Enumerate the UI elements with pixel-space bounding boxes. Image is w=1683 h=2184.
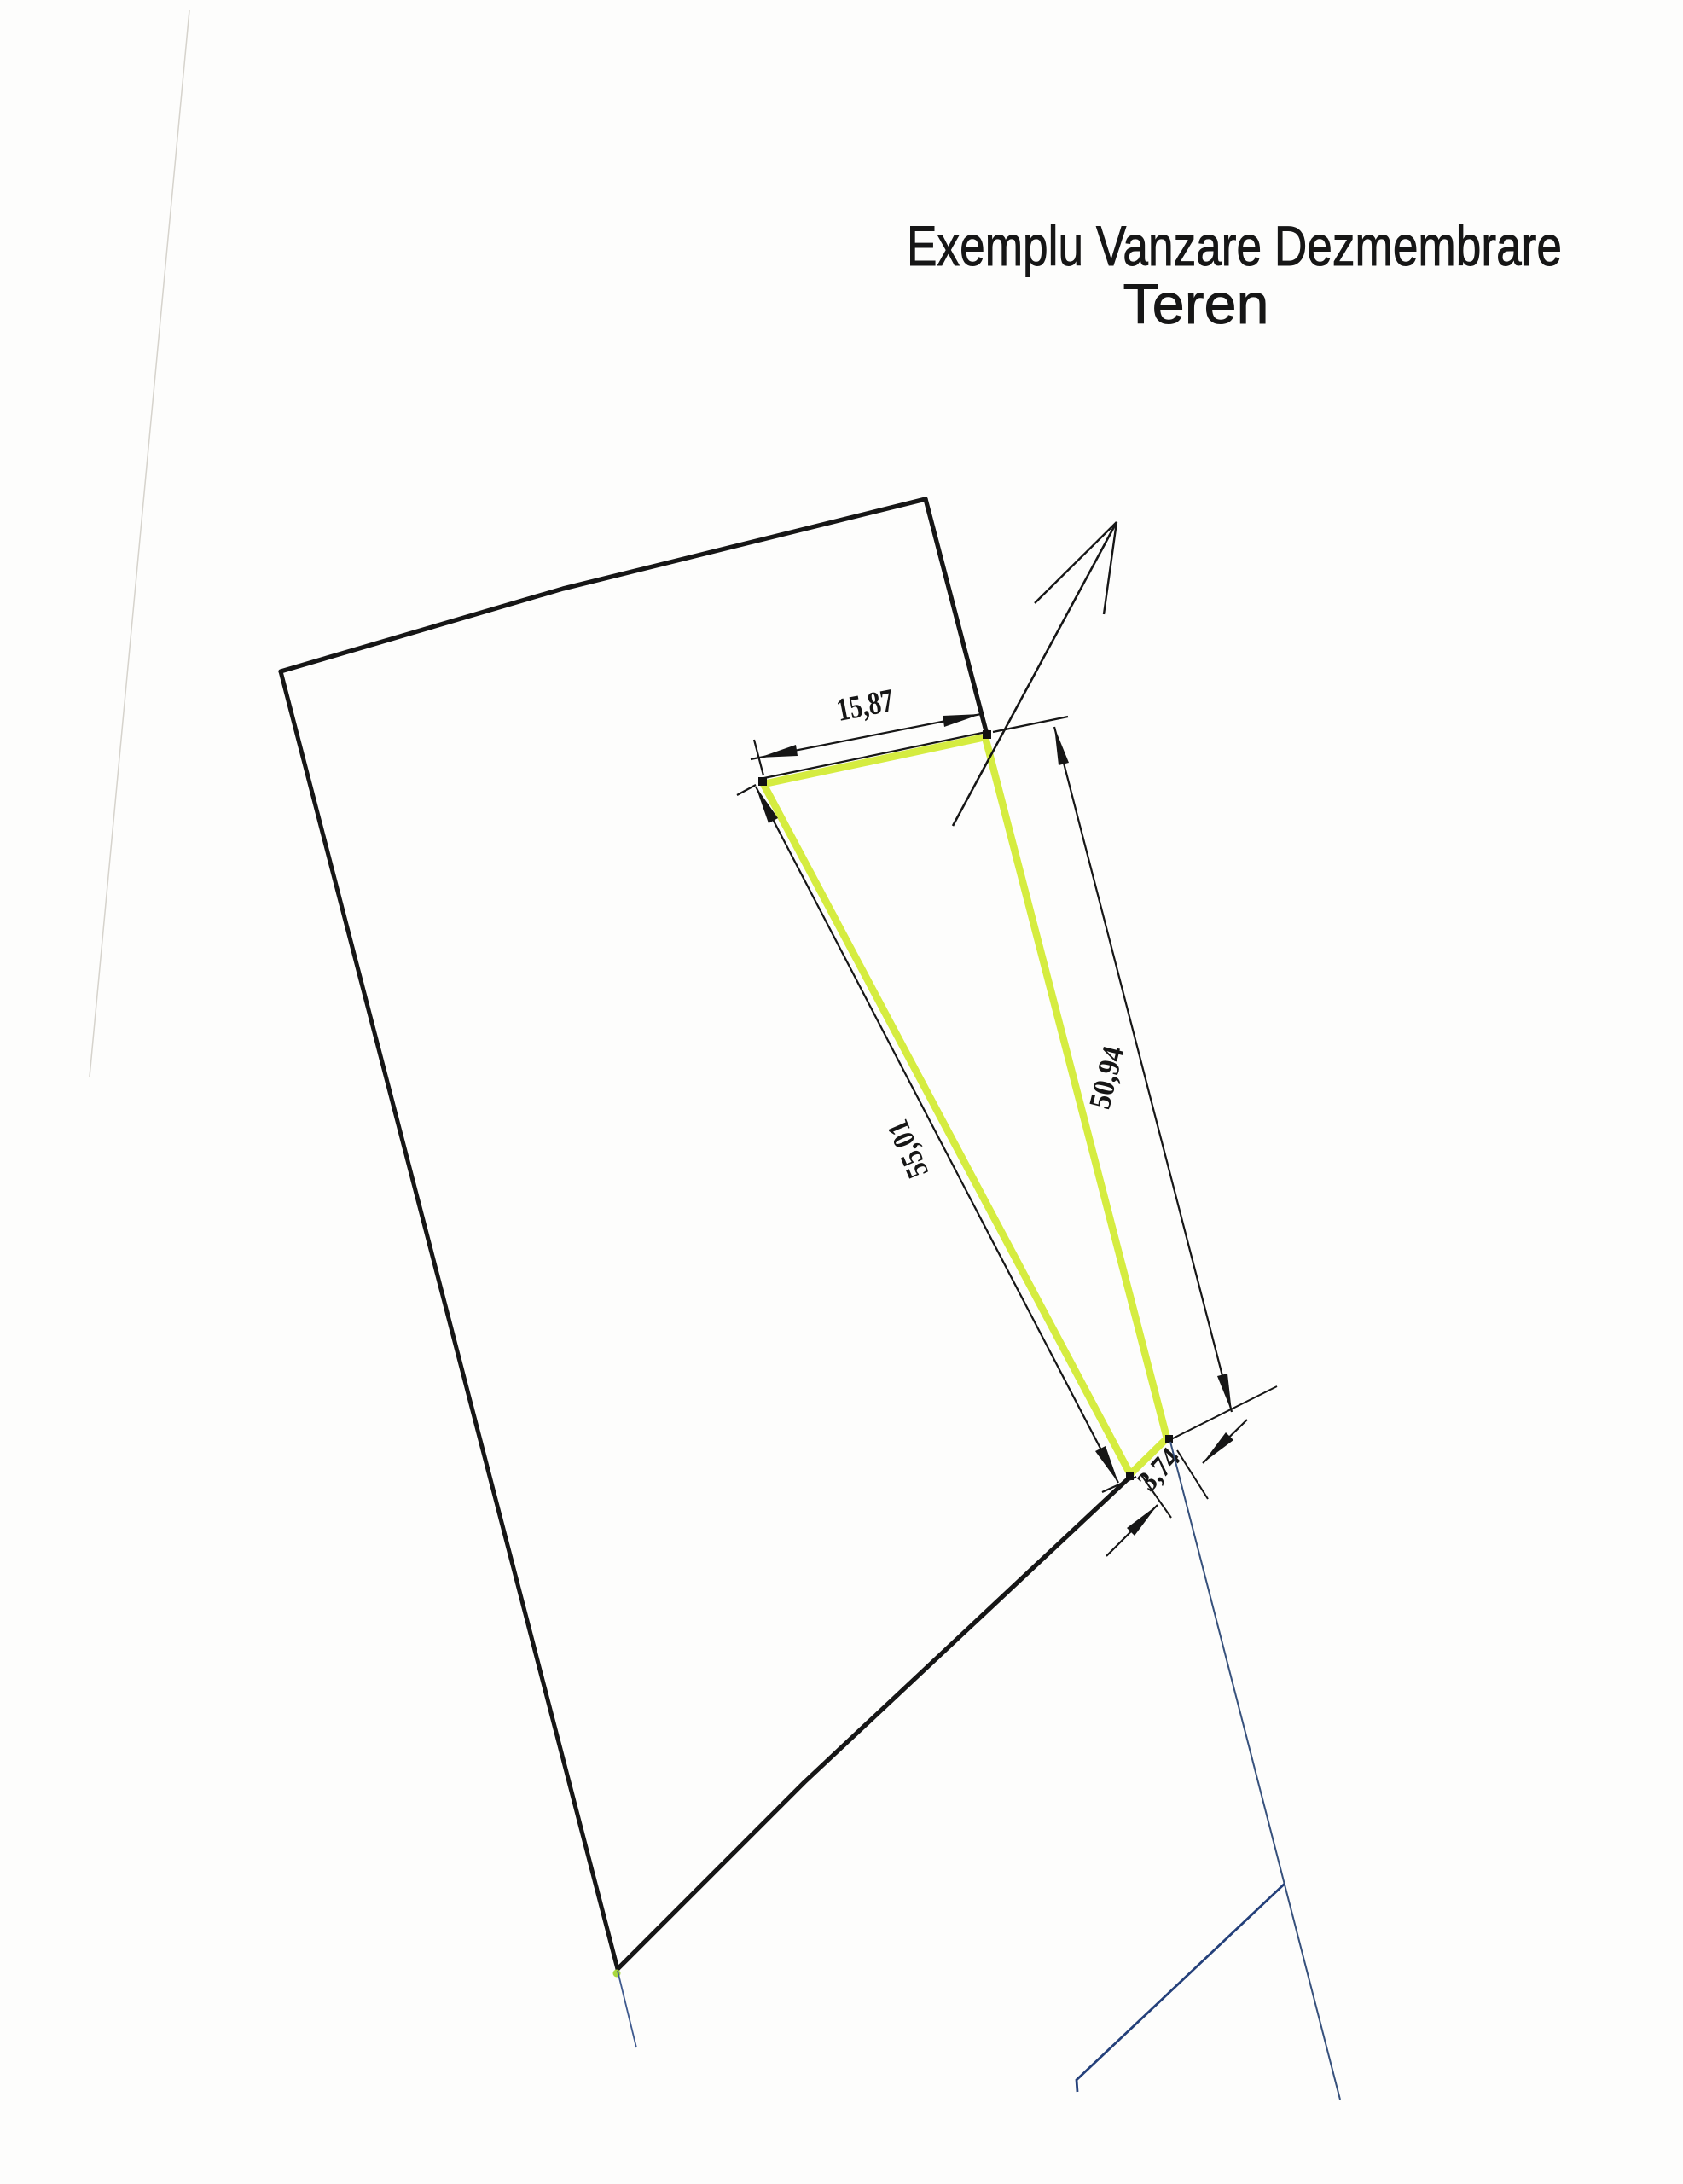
svg-text:Teren: Teren <box>1123 272 1269 335</box>
svg-text:Exemplu Vanzare Dezmembrare: Exemplu Vanzare Dezmembrare <box>907 214 1562 277</box>
